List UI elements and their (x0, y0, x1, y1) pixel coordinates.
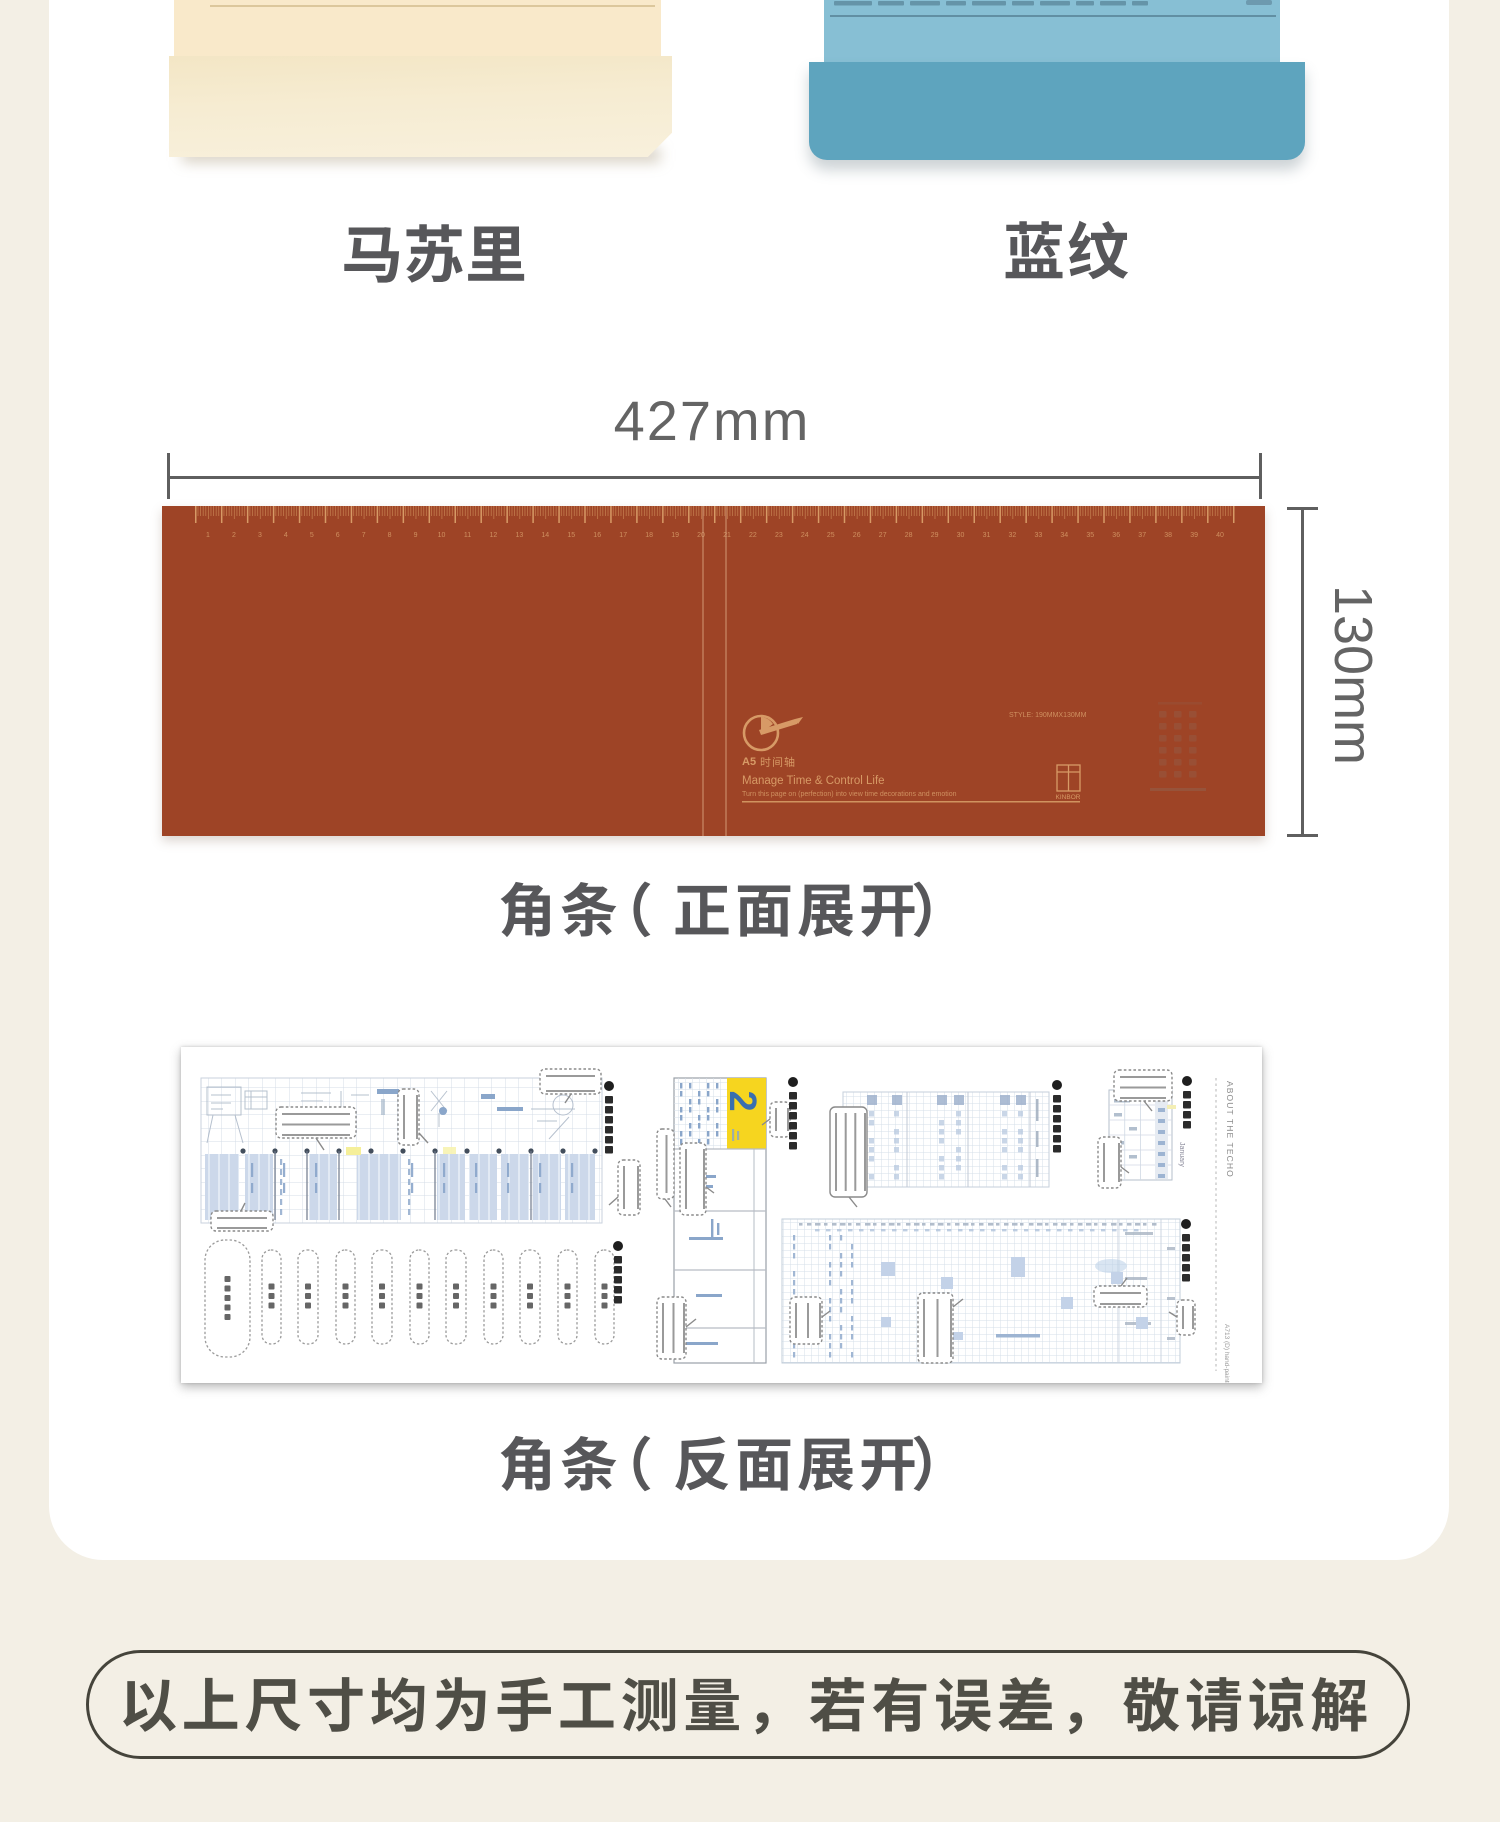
svg-text:2: 2 (721, 1090, 763, 1111)
svg-text:A713 (D) hand-painted artwork: A713 (D) hand-painted artwork (1223, 1324, 1230, 1383)
svg-text:January: January (1178, 1142, 1185, 1167)
svg-text:KINBOR: KINBOR (1056, 794, 1081, 801)
svg-text:ABOUT THE TECHO: ABOUT THE TECHO (1225, 1081, 1235, 1178)
svg-text:A5: A5 (742, 756, 756, 768)
svg-text:Manage Time & Control Life: Manage Time & Control Life (742, 775, 885, 787)
svg-text:Turn this page on (perfection): Turn this page on (perfection) into view… (742, 791, 957, 798)
svg-text:STYLE: 190MMX130MM: STYLE: 190MMX130MM (1009, 712, 1087, 719)
